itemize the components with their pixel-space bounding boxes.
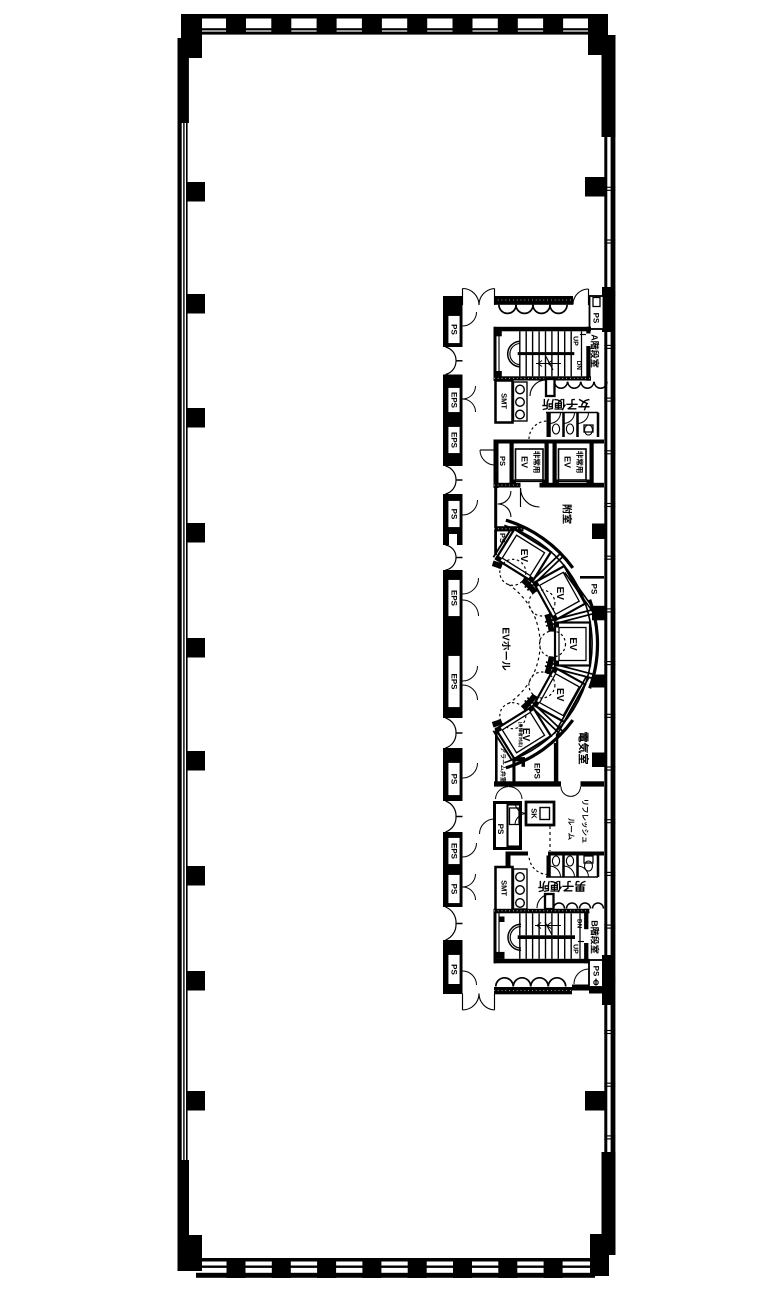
- svg-text:附室: 附室: [561, 504, 573, 524]
- svg-text:PS: PS: [592, 313, 601, 324]
- svg-text:ルーム: ルーム: [567, 818, 576, 841]
- svg-text:EPS: EPS: [450, 432, 459, 449]
- svg-text:PS: PS: [450, 509, 459, 520]
- svg-text:非常用: 非常用: [575, 451, 584, 474]
- svg-text:A階段室: A階段室: [590, 334, 600, 368]
- svg-text:男子便所: 男子便所: [538, 879, 586, 893]
- svg-text:UP: UP: [572, 944, 579, 954]
- svg-text:PS: PS: [450, 884, 459, 895]
- svg-text:EV: EV: [518, 549, 529, 563]
- svg-text:アラーム弁室: アラーム弁室: [499, 747, 507, 783]
- svg-text:リフレッシュ: リフレッシュ: [581, 799, 590, 844]
- svg-text:SMT: SMT: [500, 393, 509, 409]
- svg-text:PS: PS: [592, 966, 601, 977]
- svg-text:EPS: EPS: [450, 673, 459, 690]
- svg-text:EV: EV: [567, 637, 578, 651]
- svg-text:EV: EV: [554, 688, 565, 702]
- svg-text:EV: EV: [520, 456, 530, 468]
- svg-text:EPS: EPS: [450, 590, 459, 607]
- svg-text:EPS: EPS: [450, 392, 459, 409]
- svg-text:電気室: 電気室: [577, 732, 590, 765]
- svg-text:女子便所: 女子便所: [542, 397, 590, 411]
- svg-text:EPS: EPS: [533, 763, 542, 780]
- svg-text:EV: EV: [563, 456, 573, 468]
- svg-text:PS: PS: [450, 964, 459, 975]
- svg-text:UP: UP: [572, 336, 579, 346]
- svg-text:PS: PS: [450, 774, 459, 785]
- svg-text:SMT: SMT: [500, 880, 509, 896]
- svg-text:DN: DN: [576, 919, 583, 929]
- svg-text:EV: EV: [554, 587, 565, 601]
- svg-text:PS: PS: [590, 584, 599, 595]
- svg-text:EVホール: EVホール: [500, 627, 512, 670]
- svg-text:SK: SK: [530, 808, 539, 819]
- svg-text:PS: PS: [498, 456, 507, 466]
- svg-text:PS: PS: [450, 324, 459, 335]
- svg-text:EPS: EPS: [450, 843, 459, 860]
- svg-text:非常用: 非常用: [532, 451, 541, 474]
- svg-text:DN: DN: [575, 361, 582, 371]
- svg-text:B階段室: B階段室: [590, 920, 600, 954]
- svg-text:PS: PS: [496, 824, 505, 835]
